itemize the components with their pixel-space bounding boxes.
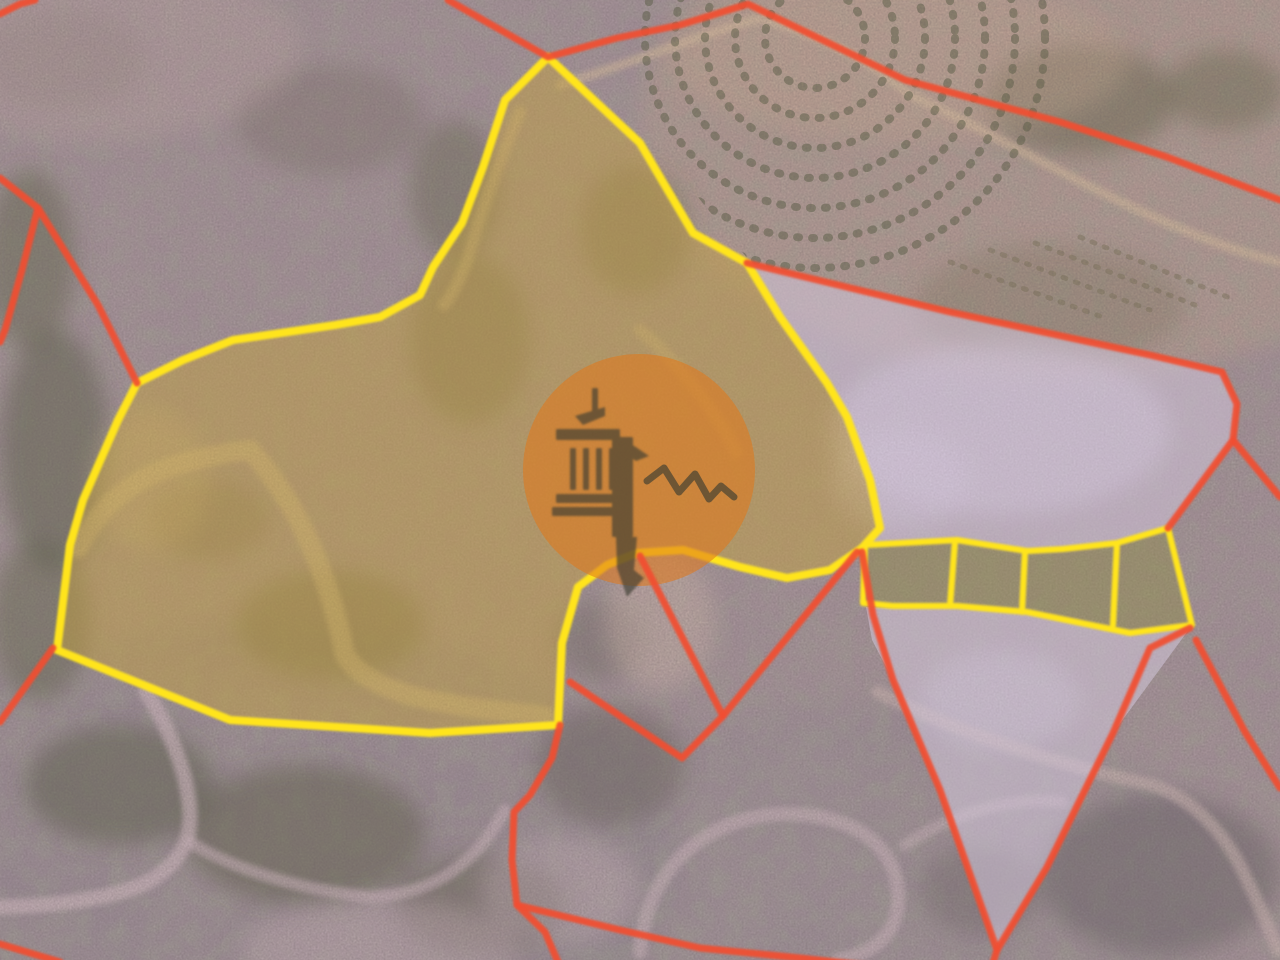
strip-divider-3 <box>1113 543 1117 625</box>
tower-part <box>570 448 576 490</box>
cadastral-map-image <box>0 0 1280 960</box>
tower-part <box>583 448 589 490</box>
tower-part <box>556 494 616 503</box>
watermark-circle <box>523 354 755 586</box>
map-svg <box>0 0 1280 960</box>
strip-divider-2 <box>1022 551 1025 612</box>
tower-part <box>552 507 614 516</box>
tower-part <box>556 429 620 440</box>
tower-part <box>596 448 602 490</box>
